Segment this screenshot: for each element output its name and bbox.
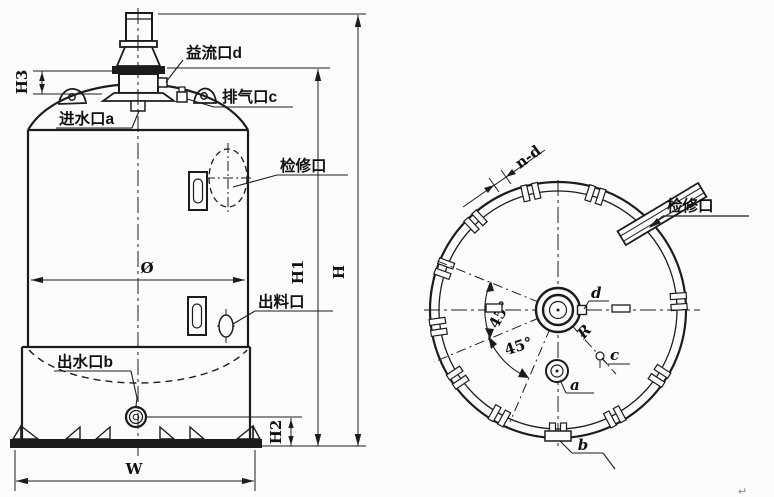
baffle-right — [612, 305, 630, 312]
dim-h-label: H — [330, 265, 348, 279]
bolt-spec-label: n-d — [512, 141, 545, 172]
baffle-left — [486, 304, 502, 312]
angle-dimensions: 45° 45° — [485, 281, 535, 378]
bolt-spec-dimension: n-d — [463, 141, 545, 207]
dim-w: W — [16, 460, 254, 484]
outlet-port-b — [126, 407, 146, 427]
dim-h2-label: H2 — [267, 420, 285, 445]
drawing-canvas: H H1 H3 H2 — [0, 0, 774, 497]
port-c-label: c — [610, 346, 619, 364]
center-nozzle — [536, 288, 580, 332]
svg-text:出水口b: 出水口b — [57, 352, 113, 371]
front-dimensions: H H1 H3 H2 — [13, 14, 366, 491]
label-vent-c: 排气口c — [187, 87, 293, 107]
svg-text:出料口: 出料口 — [258, 292, 305, 311]
dim-w-label: W — [125, 460, 144, 478]
paragraph-mark: ↵ — [738, 486, 747, 497]
angle-lower-label: 45° — [502, 333, 535, 359]
label-inlet-a: 进水口a — [56, 109, 139, 128]
plan-port-c: c — [596, 346, 630, 368]
dim-diameter-label: Ø — [140, 259, 153, 277]
front-view: H H1 H3 H2 — [10, 8, 366, 491]
dim-h1-label: H1 — [289, 260, 307, 285]
label-overflow-d: 益流口d — [166, 43, 242, 82]
sight-glass-lower — [188, 297, 206, 335]
port-b-label: b — [578, 436, 589, 454]
vent-port-c — [177, 87, 187, 102]
port-d-label: d — [591, 284, 602, 302]
port-a-label: a — [570, 376, 580, 394]
plan-port-a: a — [546, 360, 594, 394]
discharge-port-fitting — [217, 309, 235, 343]
base-plate — [10, 426, 262, 448]
manhole-hidden-outline — [205, 143, 251, 213]
svg-text:排气口c: 排气口c — [222, 87, 278, 106]
dim-h3-label: H3 — [13, 70, 31, 95]
svg-text:检修口: 检修口 — [280, 156, 327, 175]
svg-text:检修口: 检修口 — [667, 196, 714, 215]
svg-text:益流口d: 益流口d — [186, 43, 242, 62]
dim-h2: H2 — [267, 418, 294, 446]
overflow-port-d — [158, 78, 167, 87]
sight-glass-upper — [189, 172, 207, 210]
label-manhole-front: 检修口 — [233, 156, 348, 187]
plan-view: 45° 45° d a — [424, 141, 749, 469]
angle-upper-label: 45° — [485, 298, 514, 332]
dim-h3: H3 — [13, 70, 45, 95]
svg-text:进水口a: 进水口a — [59, 109, 115, 128]
tank-drawing: H H1 H3 H2 — [0, 0, 774, 497]
stack-cap — [126, 13, 152, 41]
dim-h: H — [330, 15, 361, 446]
plan-port-b: b — [545, 431, 615, 469]
dim-h1: H1 — [289, 69, 321, 446]
